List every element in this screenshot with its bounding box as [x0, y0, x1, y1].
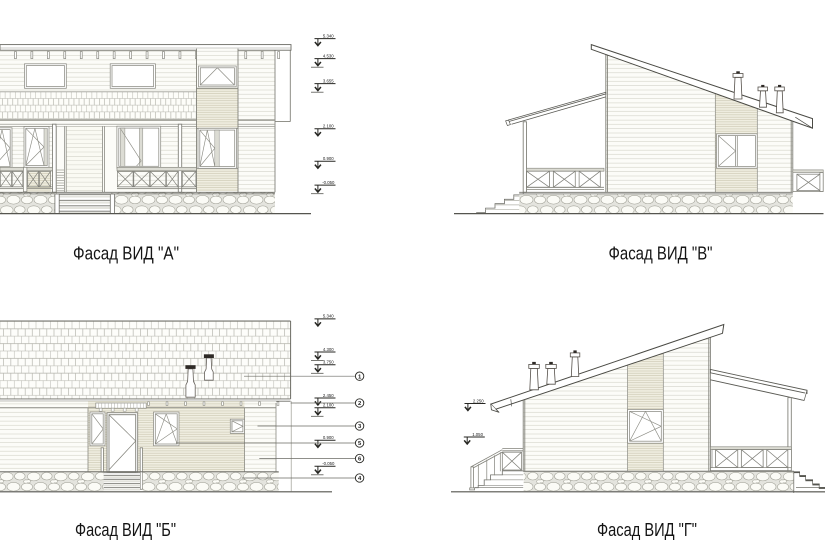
- svg-text:Фасад ВИД "Г": Фасад ВИД "Г": [597, 520, 697, 540]
- svg-text:-0.050: -0.050: [322, 180, 335, 185]
- svg-text:2.100: 2.100: [323, 124, 334, 129]
- svg-text:3.750: 3.750: [323, 360, 334, 365]
- svg-text:Фасад ВИД "В": Фасад ВИД "В": [609, 244, 713, 264]
- svg-text:4.530: 4.530: [323, 53, 334, 58]
- svg-text:0.900: 0.900: [323, 156, 334, 161]
- svg-text:Фасад ВИД "А": Фасад ВИД "А": [73, 244, 179, 264]
- svg-text:2.450: 2.450: [323, 393, 334, 398]
- svg-text:4.300: 4.300: [323, 347, 334, 352]
- svg-text:5.340: 5.340: [323, 33, 334, 38]
- svg-text:3.655: 3.655: [323, 78, 334, 83]
- svg-text:2.250: 2.250: [473, 398, 484, 403]
- svg-text:-0.050: -0.050: [322, 461, 335, 466]
- svg-text:Фасад ВИД "Б": Фасад ВИД "Б": [75, 520, 176, 540]
- svg-text:0.900: 0.900: [323, 435, 334, 440]
- svg-text:1.050: 1.050: [472, 432, 483, 437]
- svg-text:5.340: 5.340: [323, 314, 334, 319]
